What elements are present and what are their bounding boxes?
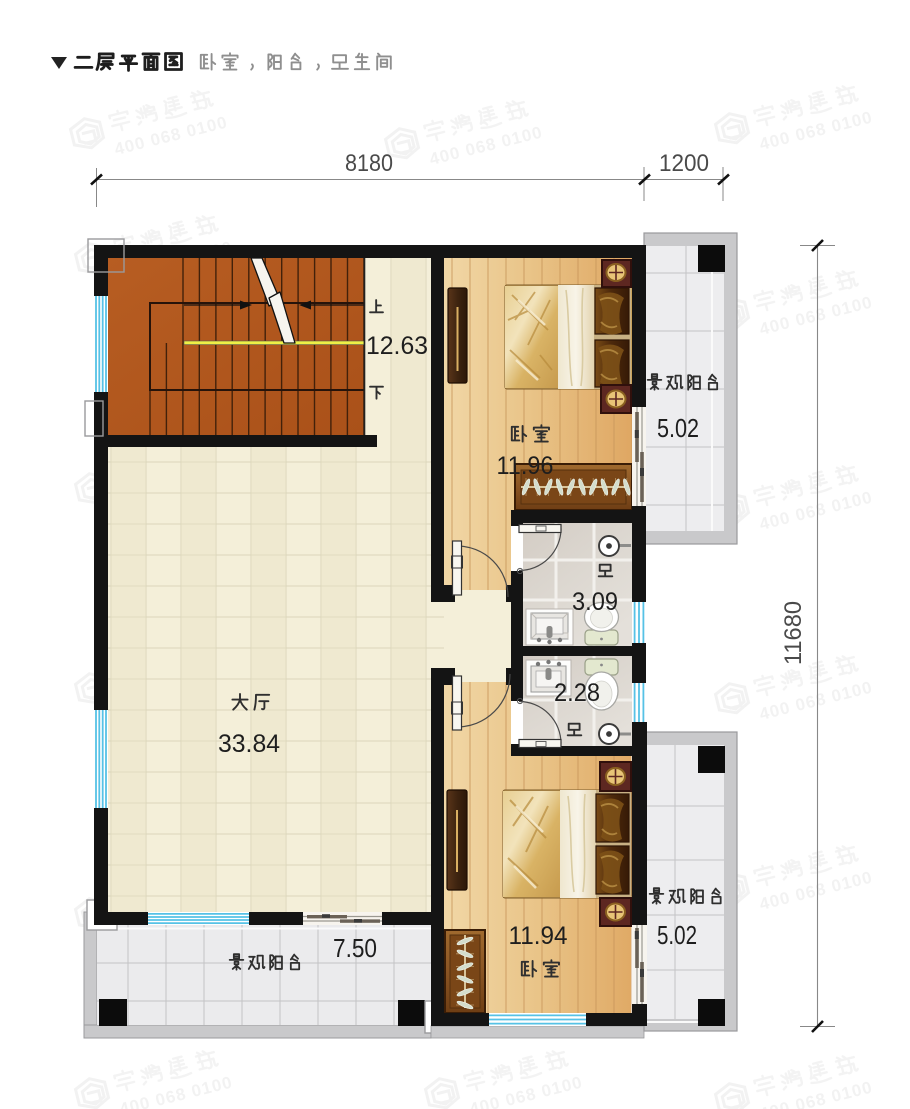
svg-text:11.94: 11.94 [509, 922, 568, 950]
svg-text:11.96: 11.96 [497, 452, 554, 480]
svg-text:7.50: 7.50 [333, 933, 377, 963]
svg-text:33.84: 33.84 [218, 730, 280, 758]
svg-text:1200: 1200 [659, 150, 709, 177]
svg-text:12.63: 12.63 [366, 332, 428, 360]
svg-text:5.02: 5.02 [657, 920, 697, 950]
svg-text:2.28: 2.28 [554, 679, 600, 707]
svg-text:11680: 11680 [780, 601, 807, 665]
svg-text:3.09: 3.09 [572, 588, 618, 616]
svg-text:5.02: 5.02 [657, 413, 699, 443]
svg-text:8180: 8180 [345, 150, 393, 177]
